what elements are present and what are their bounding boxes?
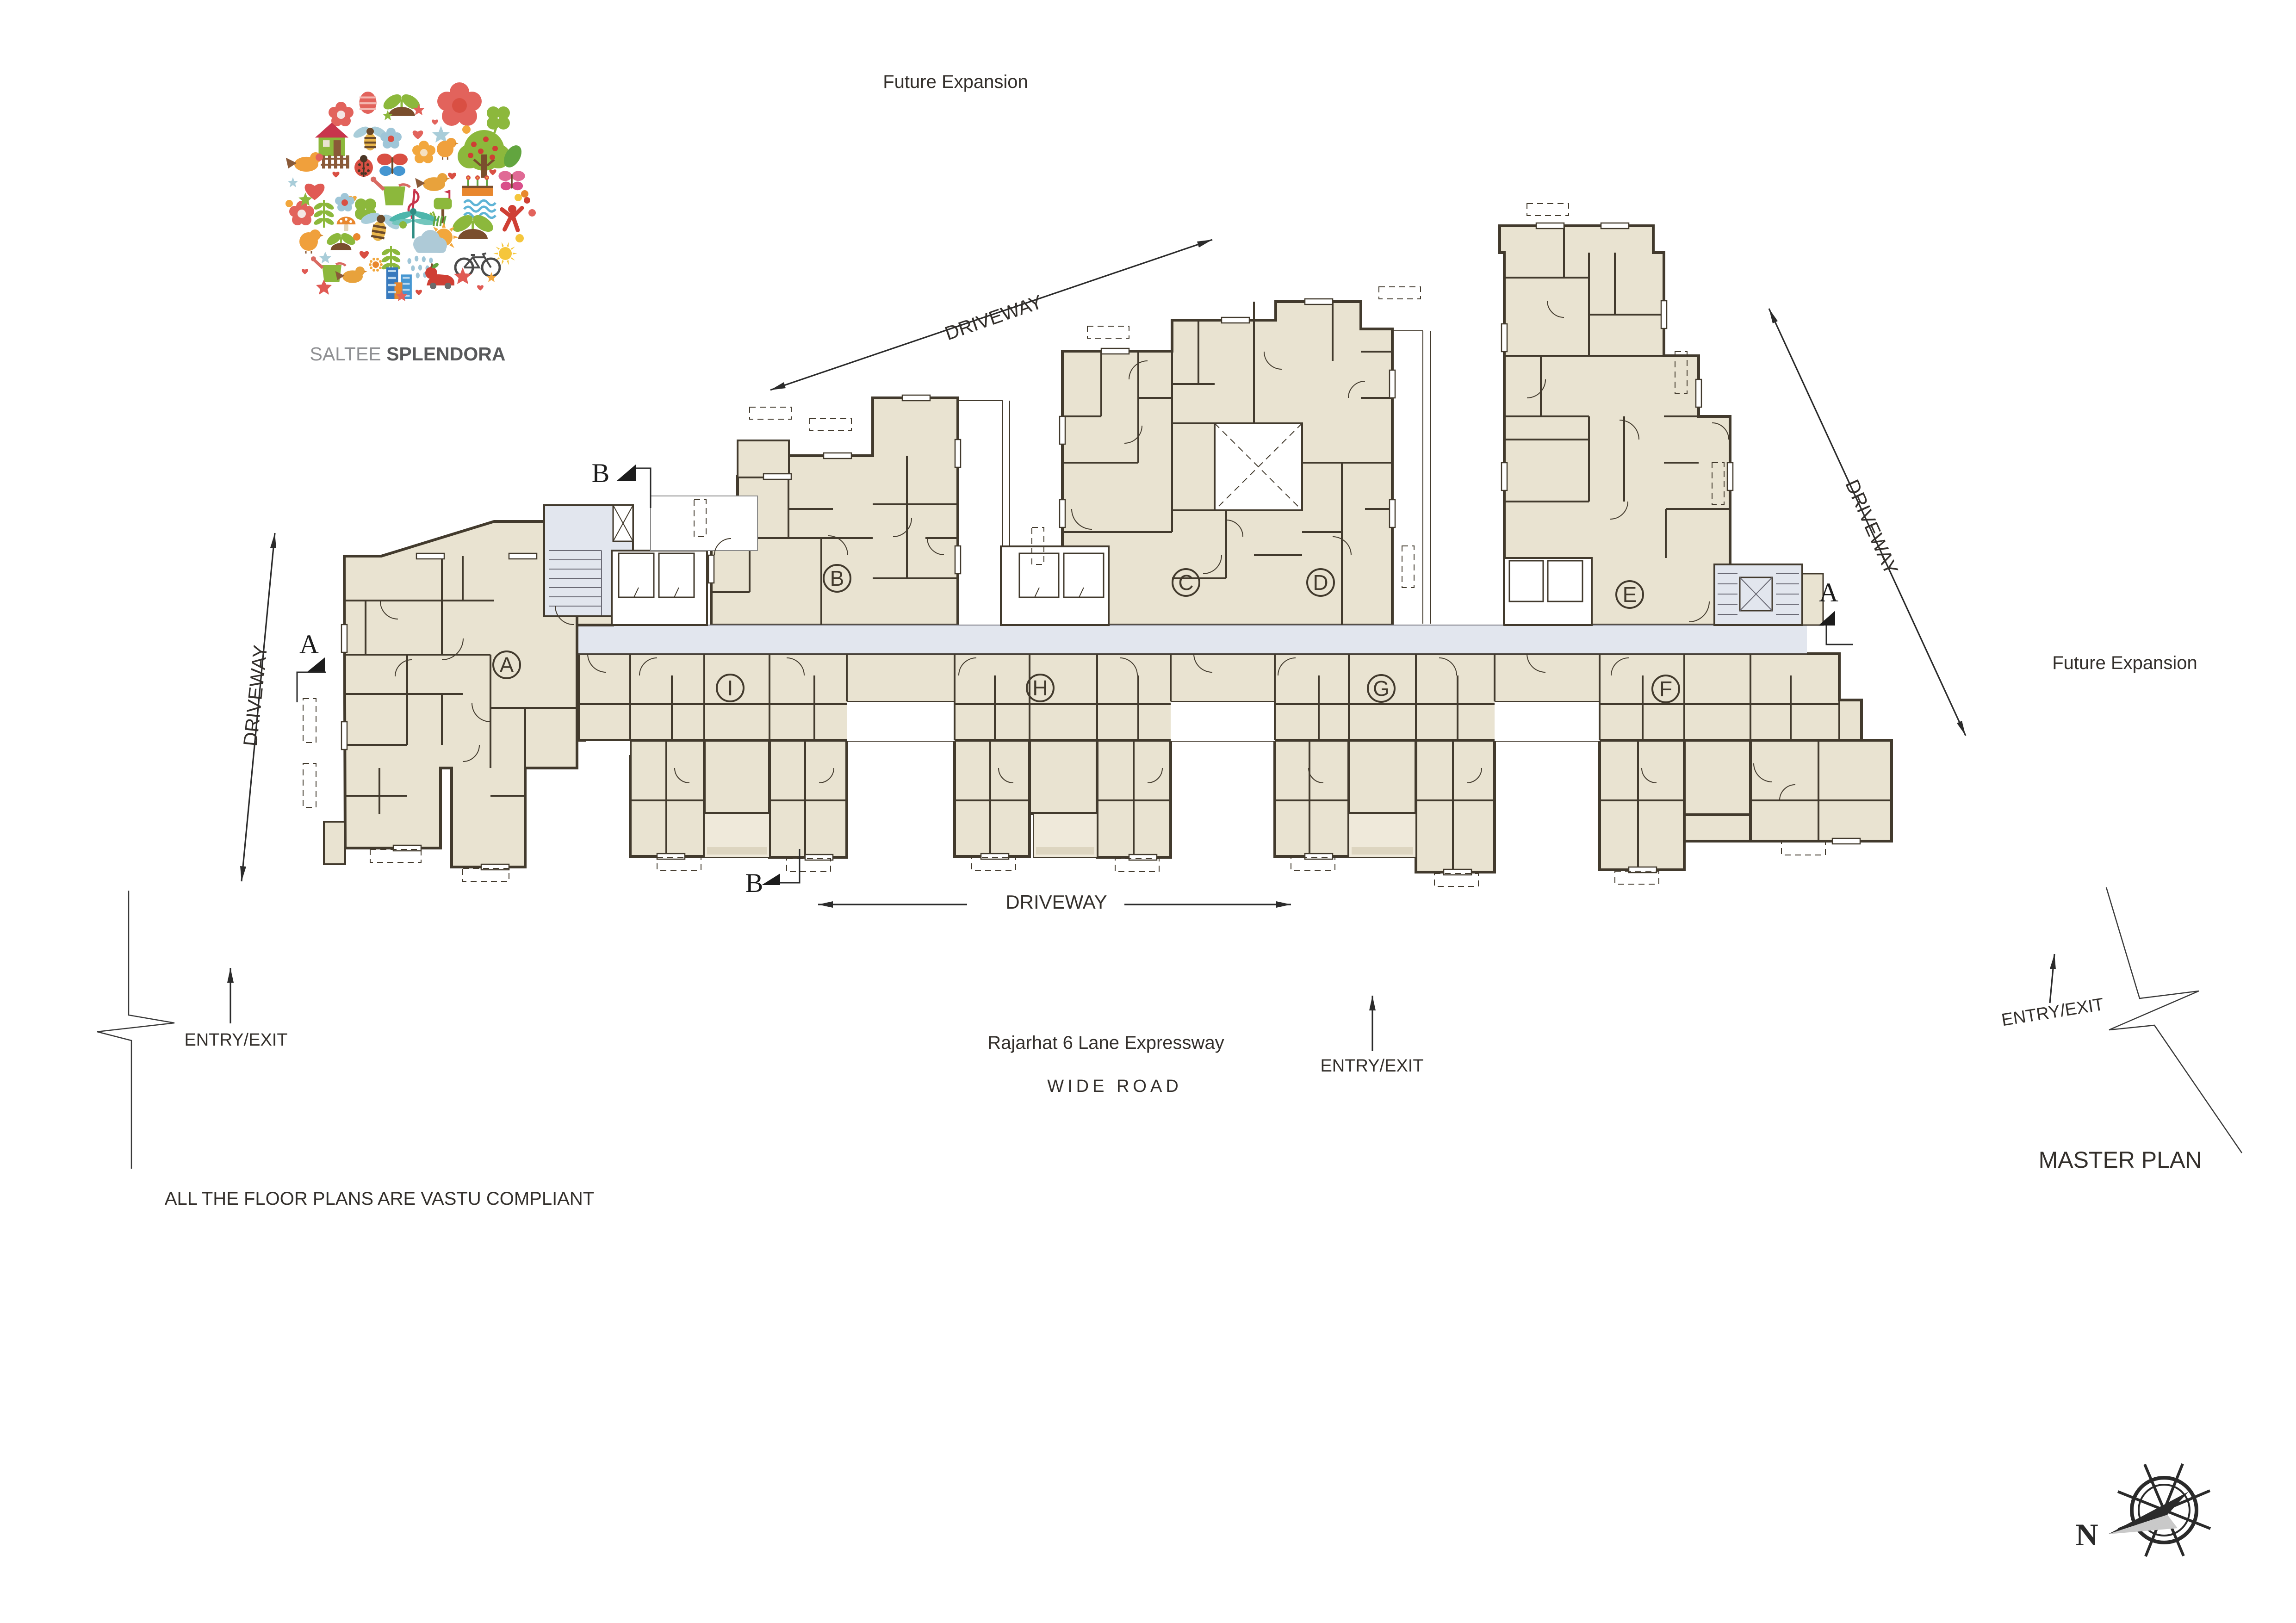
svg-text:B: B [745,868,763,898]
svg-text:DRIVEWAY: DRIVEWAY [1005,891,1107,913]
svg-text:D: D [1313,570,1328,595]
svg-text:A: A [299,629,319,659]
svg-text:Future Expansion: Future Expansion [2052,653,2197,673]
svg-text:Rajarhat 6 Lane Expressway: Rajarhat 6 Lane Expressway [987,1033,1224,1053]
svg-text:F: F [1659,677,1672,701]
svg-text:WIDE ROAD: WIDE ROAD [1047,1077,1182,1096]
svg-text:B: B [592,458,610,488]
svg-text:I: I [727,676,733,700]
svg-text:MASTER PLAN: MASTER PLAN [2039,1147,2202,1173]
svg-text:B: B [830,566,844,590]
svg-text:ALL THE FLOOR PLANS ARE VASTU: ALL THE FLOOR PLANS ARE VASTU COMPLIANT [165,1189,594,1209]
svg-text:A: A [1819,577,1838,607]
svg-text:H: H [1032,676,1048,700]
svg-text:E: E [1623,582,1637,607]
svg-text:G: G [1373,676,1390,700]
svg-text:A: A [500,653,514,677]
svg-text:N: N [2075,1517,2098,1552]
svg-text:ENTRY/EXIT: ENTRY/EXIT [184,1030,287,1050]
svg-text:C: C [1178,570,1193,595]
svg-text:SALTEE SPLENDORA: SALTEE SPLENDORA [310,343,505,365]
svg-text:ENTRY/EXIT: ENTRY/EXIT [1320,1056,1423,1076]
svg-text:Future Expansion: Future Expansion [883,72,1028,92]
